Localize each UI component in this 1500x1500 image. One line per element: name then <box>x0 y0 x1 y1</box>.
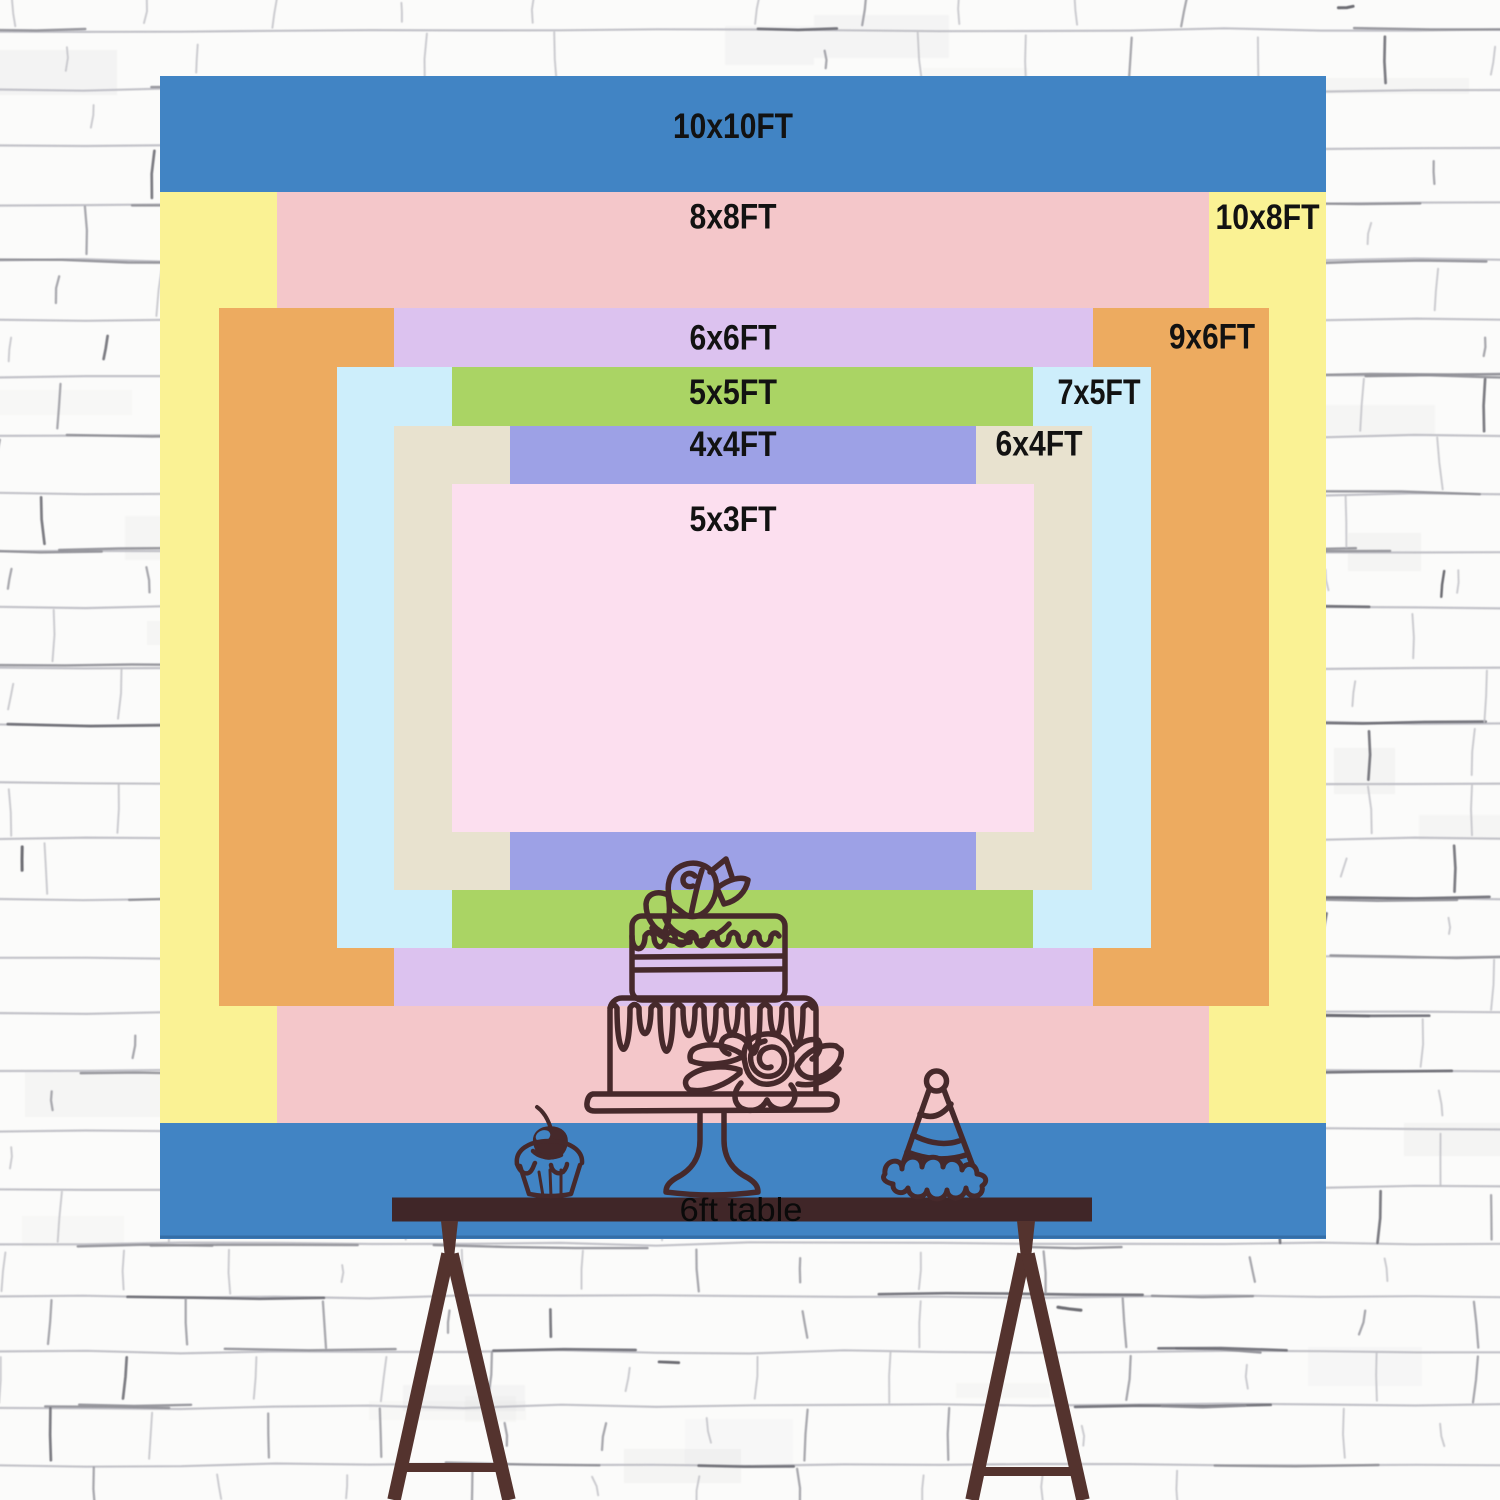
svg-text:4x4FT: 4x4FT <box>690 425 777 464</box>
svg-text:5x5FT: 5x5FT <box>689 373 777 412</box>
svg-text:6x4FT: 6x4FT <box>996 425 1083 464</box>
svg-text:6x6FT: 6x6FT <box>690 319 777 358</box>
svg-text:8x8FT: 8x8FT <box>690 198 777 237</box>
svg-text:9x6FT: 9x6FT <box>1169 318 1255 357</box>
svg-text:10x10FT: 10x10FT <box>673 107 793 146</box>
svg-text:5x3FT: 5x3FT <box>690 500 777 539</box>
svg-text:10x8FT: 10x8FT <box>1216 198 1320 237</box>
svg-text:7x5FT: 7x5FT <box>1058 373 1141 412</box>
